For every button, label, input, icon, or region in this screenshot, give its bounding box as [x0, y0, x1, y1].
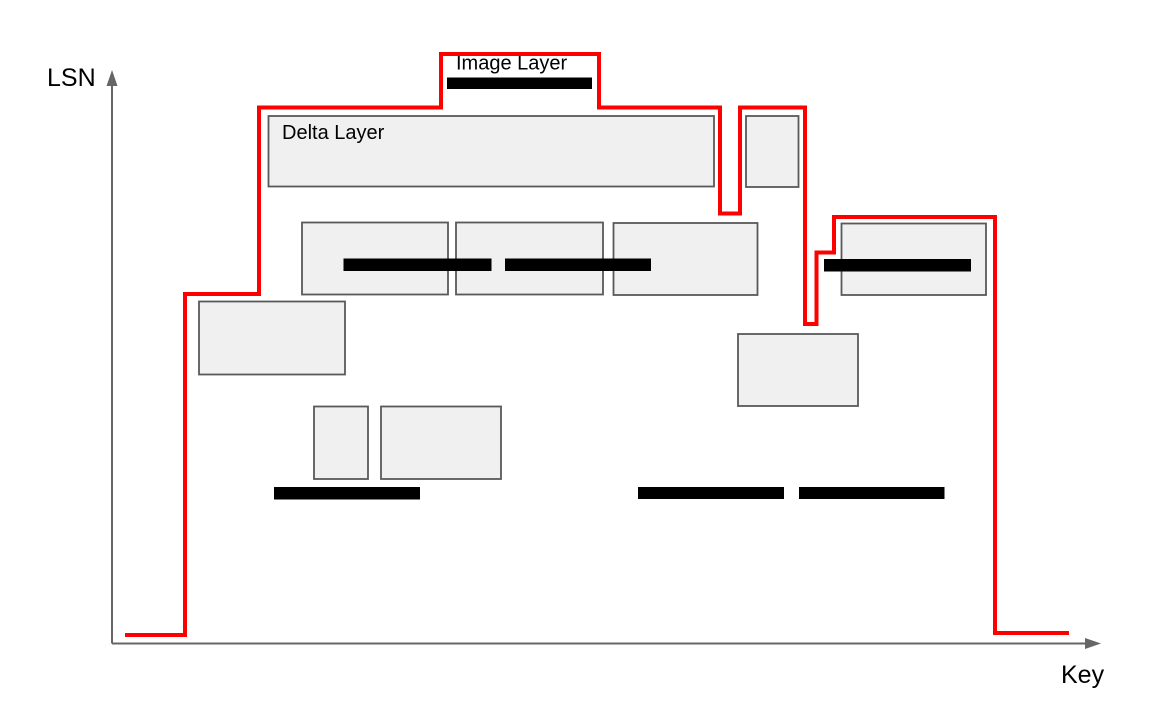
svg-text:Key: Key	[1061, 661, 1105, 689]
svg-text:Delta Layer: Delta Layer	[282, 122, 385, 144]
svg-text:LSN: LSN	[47, 64, 96, 92]
